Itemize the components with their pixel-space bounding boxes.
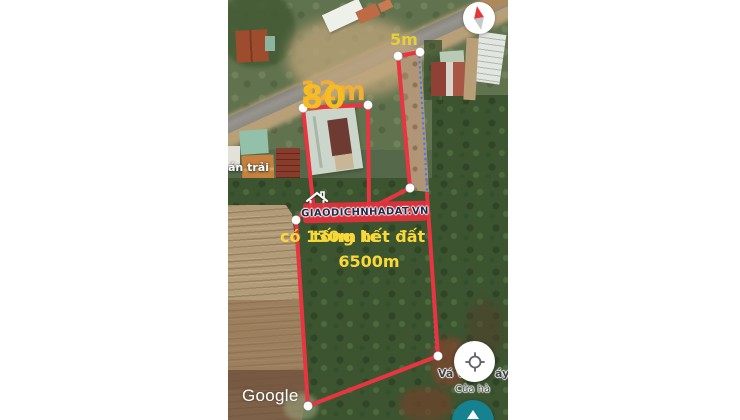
building-maroon-roof — [327, 118, 352, 156]
roof-ridge — [313, 116, 323, 168]
front-width-sub: 80 — [301, 81, 346, 113]
top-width-annotation: 5m — [390, 30, 418, 49]
building-teal-roof — [239, 129, 269, 155]
watermark-text: GIAODICHNHADAT.VN — [301, 205, 429, 219]
building-beige-roof — [334, 153, 354, 170]
building-red-roof — [235, 29, 269, 63]
building-teal-roof — [265, 36, 275, 51]
watermark-ribbon: GIAODICHNHADAT.VN — [303, 201, 427, 224]
google-attribution: Google — [242, 386, 299, 406]
compass-button[interactable] — [463, 2, 495, 34]
area-line2: có 130m tc — [280, 224, 379, 249]
screenshot-canvas: GIAODICHNHADAT.VN 5m 12m 80 tống hết đất… — [0, 0, 740, 420]
poi-label-left[interactable]: án trải — [228, 161, 269, 174]
my-location-button[interactable] — [454, 341, 495, 382]
building-red-roof — [431, 62, 468, 96]
poi-label-bottom-small[interactable]: Cửa hà — [455, 384, 490, 395]
bare-soil-patch — [400, 388, 452, 420]
poi-label-bottom-right[interactable]: áy ga — [495, 367, 508, 380]
my-location-icon — [464, 351, 486, 373]
up-arrow-icon — [467, 410, 479, 419]
map-viewport[interactable]: GIAODICHNHADAT.VN 5m 12m 80 tống hết đất… — [228, 0, 508, 420]
forest — [432, 95, 508, 185]
